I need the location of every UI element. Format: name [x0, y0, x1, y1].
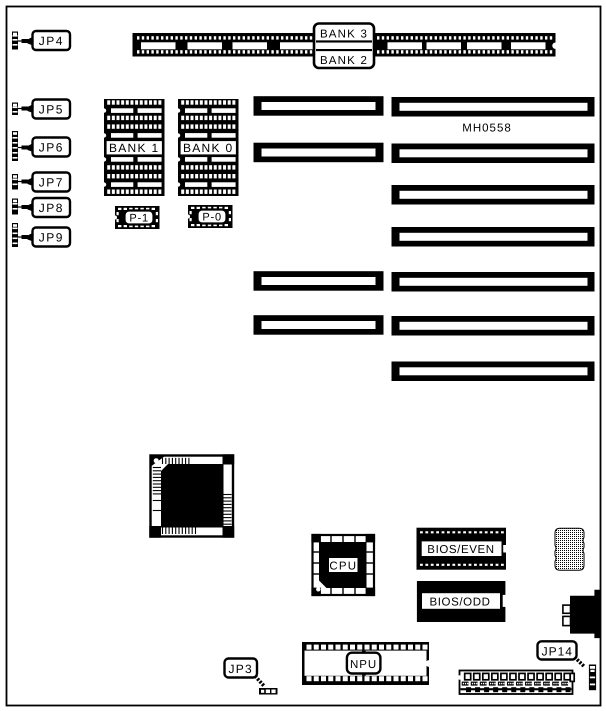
svg-text:P-1: P-1	[129, 212, 149, 224]
svg-text:BANK 0: BANK 0	[183, 141, 234, 155]
svg-text:JP9: JP9	[39, 231, 64, 245]
svg-text:CPU: CPU	[329, 560, 357, 572]
svg-text:MH0558: MH0558	[462, 123, 511, 135]
svg-text:JP6: JP6	[39, 141, 64, 155]
svg-text:BANK 3: BANK 3	[320, 29, 368, 41]
svg-text:BANK 1: BANK 1	[109, 141, 160, 155]
svg-text:BIOS/ODD: BIOS/ODD	[429, 597, 490, 609]
svg-text:BANK 2: BANK 2	[320, 55, 368, 67]
svg-text:JP8: JP8	[39, 201, 64, 215]
svg-text:JP7: JP7	[39, 176, 64, 190]
svg-text:JP4: JP4	[39, 34, 64, 48]
svg-text:JP14: JP14	[542, 644, 573, 658]
svg-text:BIOS/EVEN: BIOS/EVEN	[427, 544, 494, 556]
svg-text:NPU: NPU	[350, 659, 377, 671]
svg-text:P-0: P-0	[202, 211, 222, 223]
svg-text:JP3: JP3	[229, 662, 253, 676]
svg-text:JP5: JP5	[39, 103, 64, 117]
